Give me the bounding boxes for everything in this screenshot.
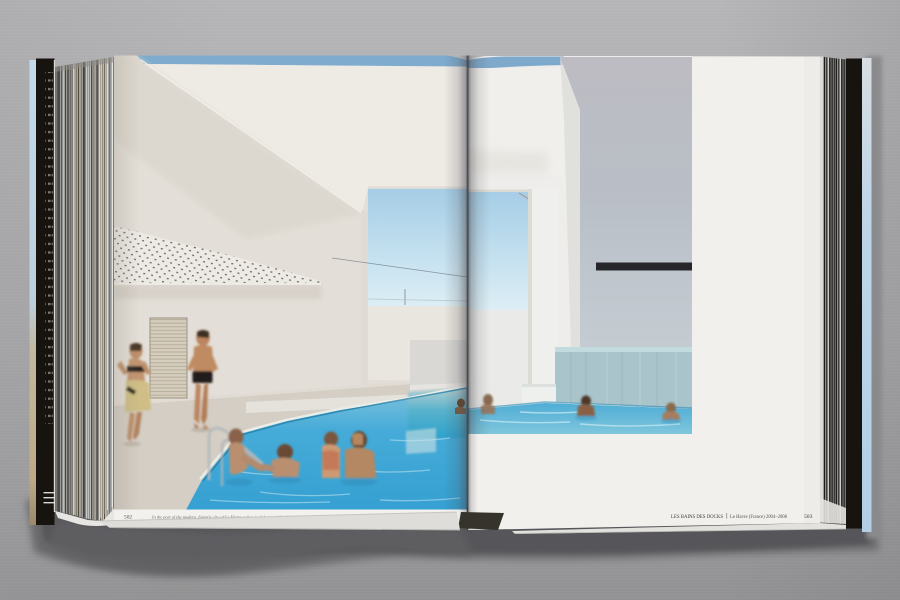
svg-text:503: 503 xyxy=(804,514,813,520)
svg-text:LES BAINS DES DOCKS: LES BAINS DES DOCKS xyxy=(671,514,723,520)
svg-text:Le Havre (France) 2004–2008: Le Havre (France) 2004–2008 xyxy=(730,513,787,520)
svg-text:502: 502 xyxy=(124,515,132,521)
